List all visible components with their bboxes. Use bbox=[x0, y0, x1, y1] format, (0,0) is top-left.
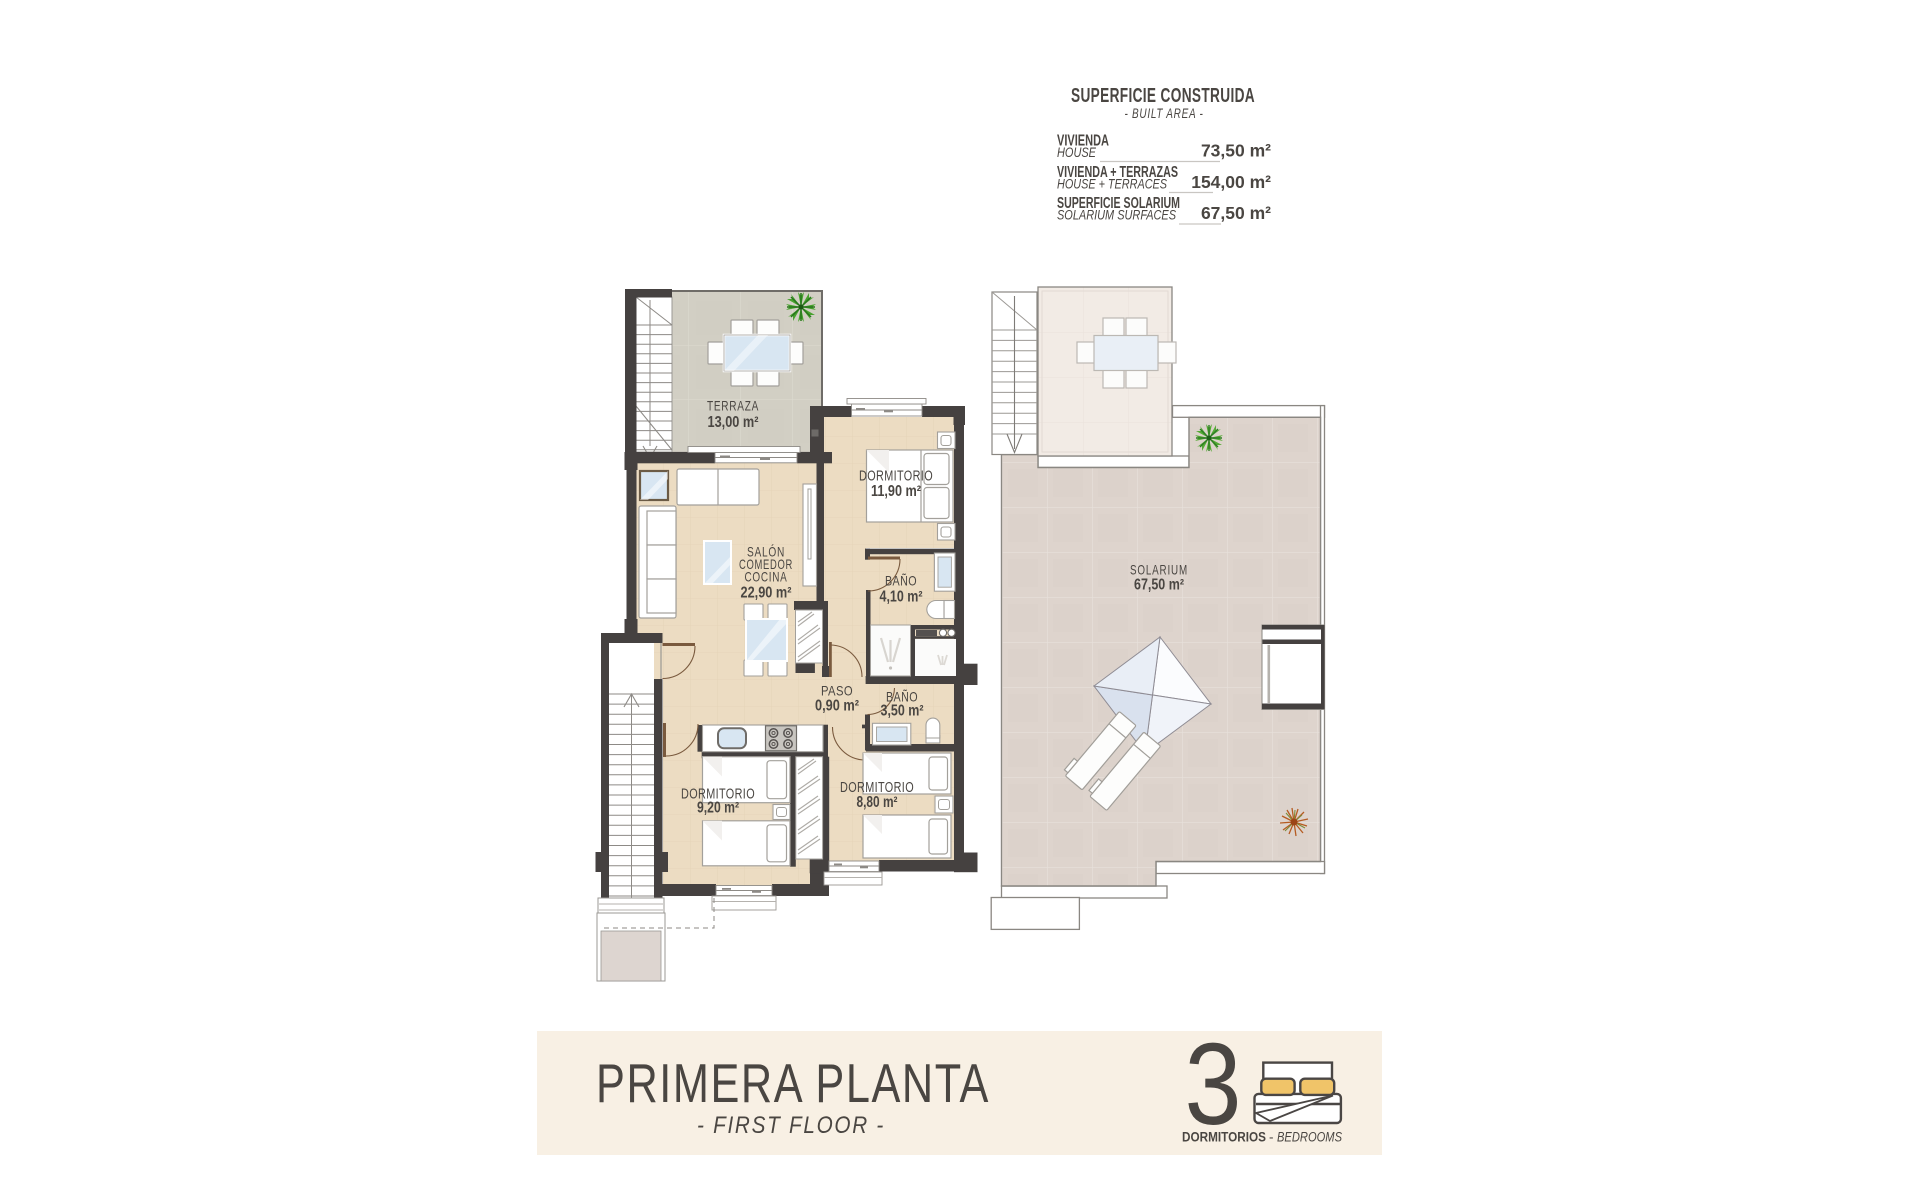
svg-text:0,90 m²: 0,90 m² bbox=[815, 698, 859, 715]
svg-text:9,20 m²: 9,20 m² bbox=[697, 800, 739, 817]
svg-text:SOLARIUM SURFACES: SOLARIUM SURFACES bbox=[1057, 208, 1176, 223]
svg-text:DORMITORIOS: DORMITORIOS bbox=[1182, 1130, 1266, 1145]
svg-text:67,50 m²: 67,50 m² bbox=[1134, 577, 1184, 594]
svg-text:HOUSE + TERRACES: HOUSE + TERRACES bbox=[1057, 177, 1167, 192]
svg-text:PRIMERA PLANTA: PRIMERA PLANTA bbox=[596, 1052, 990, 1114]
svg-text:154,00 m²: 154,00 m² bbox=[1191, 172, 1271, 192]
svg-text:-: - bbox=[1269, 1130, 1274, 1145]
svg-text:BAÑO: BAÑO bbox=[885, 573, 917, 589]
svg-text:PASO: PASO bbox=[821, 683, 853, 699]
svg-text:8,80 m²: 8,80 m² bbox=[857, 794, 898, 811]
svg-text:COCINA: COCINA bbox=[745, 569, 788, 585]
svg-text:SUPERFICIE CONSTRUIDA: SUPERFICIE CONSTRUIDA bbox=[1071, 85, 1255, 107]
svg-text:13,00 m²: 13,00 m² bbox=[708, 414, 759, 431]
svg-text:73,50 m²: 73,50 m² bbox=[1201, 141, 1271, 161]
svg-text:11,90 m²: 11,90 m² bbox=[871, 483, 921, 500]
svg-text:3,50 m²: 3,50 m² bbox=[881, 703, 924, 720]
svg-text:TERRAZA: TERRAZA bbox=[707, 398, 759, 414]
svg-text:- BUILT AREA -: - BUILT AREA - bbox=[1125, 105, 1204, 121]
svg-text:67,50 m²: 67,50 m² bbox=[1201, 203, 1271, 223]
svg-text:- FIRST FLOOR -: - FIRST FLOOR - bbox=[697, 1112, 885, 1139]
svg-text:22,90 m²: 22,90 m² bbox=[741, 585, 792, 602]
svg-text:BEDROOMS: BEDROOMS bbox=[1277, 1130, 1342, 1145]
svg-text:HOUSE: HOUSE bbox=[1057, 145, 1097, 160]
svg-text:4,10 m²: 4,10 m² bbox=[880, 589, 923, 606]
svg-text:SOLARIUM: SOLARIUM bbox=[1130, 562, 1188, 578]
